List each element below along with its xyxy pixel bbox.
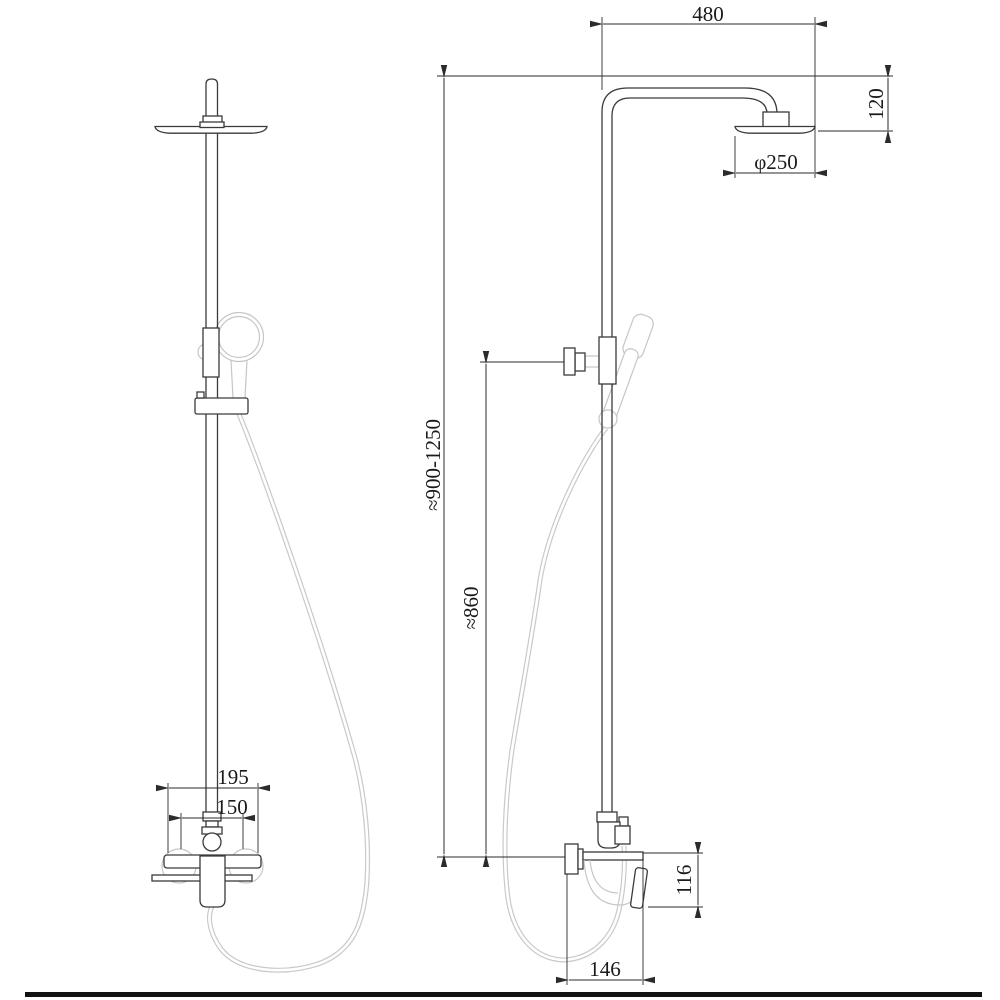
slider-bracket-side: [599, 337, 616, 384]
dimensions: 480 120 φ250 ≈900-1250 ≈860: [168, 2, 893, 985]
dim-valve-depth: 146: [567, 858, 643, 985]
front-view: [152, 79, 368, 970]
dim-head-drop: 120: [437, 76, 893, 131]
swivel-ball-front: [203, 833, 221, 851]
knob-stem: [585, 356, 599, 367]
drawing-page: 480 120 φ250 ≈900-1250 ≈860: [0, 0, 1000, 1000]
hose-outlet-box: [615, 826, 630, 844]
mixer-spout-front: [200, 856, 225, 907]
slider-knob-side: [564, 348, 575, 375]
holder-knob-nub: [197, 392, 204, 398]
rain-head-side: [735, 127, 815, 134]
hand-shower-head-front: [215, 313, 264, 362]
dim-label-valve-overall-width: 195: [217, 765, 249, 789]
hand-shower-hose: [209, 414, 367, 970]
mixer-body-side: [583, 852, 643, 860]
dim-label-riser-height: ≈860: [459, 586, 483, 629]
riser-arm-outer: [602, 88, 777, 812]
mixer-spout-side: [584, 860, 637, 905]
bottom-border-line: [25, 992, 982, 997]
rain-head-connector-side: [763, 112, 789, 127]
hand-shower-hose-side: [505, 428, 624, 960]
hand-shower-holder: [195, 398, 248, 414]
dim-valve-height: 116: [643, 853, 703, 907]
dim-label-head-diameter: φ250: [754, 150, 798, 174]
dim-label-valve-center-distance: 150: [216, 795, 248, 819]
dim-overall-height: ≈900-1250: [421, 78, 565, 857]
dim-label-valve-height: 116: [672, 865, 696, 896]
dim-label-arm-reach: 480: [692, 2, 724, 26]
dim-label-valve-depth: 146: [589, 957, 621, 981]
side-view: [505, 88, 815, 960]
riser-pipe-front: [206, 79, 218, 812]
riser-arm-inner: [612, 98, 767, 812]
hand-shower-handle-front: [231, 360, 233, 398]
slider-sleeve-front: [203, 328, 219, 377]
dim-riser-height: ≈860: [459, 362, 564, 854]
dim-label-overall-height: ≈900-1250: [421, 419, 445, 511]
riser-coupling-side: [597, 812, 617, 822]
technical-drawing: 480 120 φ250 ≈900-1250 ≈860: [0, 0, 1000, 1000]
mixer-handle-side: [630, 867, 647, 908]
dim-label-head-drop: 120: [864, 88, 888, 120]
dim-head-diameter: φ250: [735, 136, 814, 178]
wall-flange-side: [565, 844, 578, 874]
